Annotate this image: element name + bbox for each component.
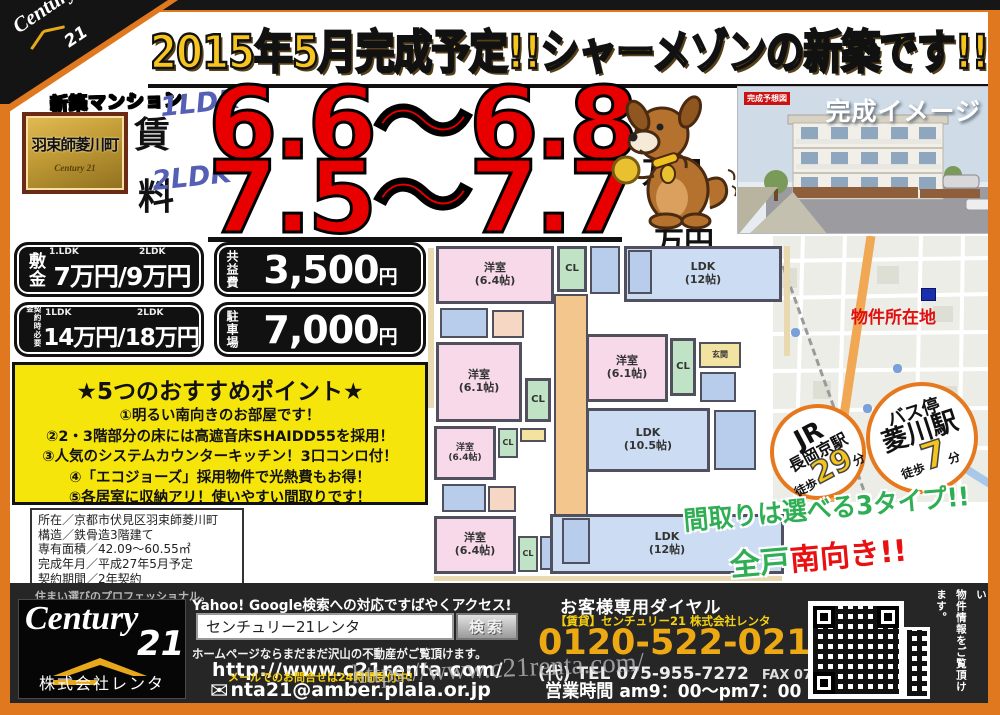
rent-price-2ldk: 7.5～7.7: [208, 148, 634, 248]
deposit-label: 敷金: [26, 252, 43, 288]
kitchen-fixture: [628, 250, 652, 294]
room-yoshitsu-5: 洋室(6.4帖): [434, 516, 516, 574]
common-fee-amount: 3,500: [263, 248, 378, 292]
corridor: [554, 294, 588, 518]
selling-point-5: ⑤各居室に収納アリ！使いやすい間取りです！: [15, 488, 425, 509]
plaque-brand-logo: Century 21: [54, 163, 95, 173]
century21-logo-box: Century 21 株式会社レンタ: [18, 599, 186, 699]
room-ldk-2: LDK(10.5帖): [586, 408, 710, 472]
bottom-frame-border: [0, 703, 1000, 715]
footer-bar: 住まい選びのプロフェッショナル。 Century 21 株式会社レンタ Yaho…: [10, 583, 988, 703]
deposit-type1: 1.LDK: [49, 247, 79, 257]
selling-points-title: ★5つのおすすめポイント★: [15, 372, 425, 406]
parking-amount: 7,000: [263, 308, 378, 352]
property-name: 羽束師菱川町: [31, 133, 118, 155]
parking-unit: 円: [379, 326, 398, 348]
business-hours: 営業時間 am9：00～pm7：00: [545, 677, 801, 703]
century21-wordmark: Century: [25, 600, 138, 638]
toilet-fixture: [590, 246, 620, 294]
right-frame-border: [988, 10, 1000, 715]
property-location-marker: [921, 288, 936, 301]
fee-box-deposit: 敷金 1.LDK 2LDK 7万円/9万円: [14, 242, 204, 297]
company-name: 株式会社レンタ: [19, 670, 185, 694]
bath-fixture: [442, 484, 486, 512]
room-yoshitsu-1: 洋室(6.4帖): [436, 246, 554, 304]
completion-render-image: 完成予想図 完成イメージ: [737, 86, 990, 234]
contract-type1: 1LDK: [45, 308, 71, 318]
selling-point-3: ③人気のシステムカウンターキッチン！3口コンロ付！: [15, 447, 425, 468]
selling-point-1: ①明るい南向きのお部屋です！: [15, 406, 425, 427]
selling-points-box: ★5つのおすすめポイント★ ①明るい南向きのお部屋です！ ②2・3階部分の床には…: [12, 362, 428, 505]
common-fee-label: 共益費: [226, 250, 238, 289]
detail-structure: 構造／鉄骨造3階建て: [38, 528, 236, 543]
search-button[interactable]: 検索: [456, 613, 518, 640]
render-caption: 完成イメージ: [825, 92, 981, 128]
balcony-strip: [428, 248, 434, 408]
selling-point-2: ②2・3階部分の床には高遮音床SHAIDD55を採用！: [15, 427, 425, 448]
common-fee-unit: 円: [379, 266, 398, 288]
room-yoshitsu-3: 洋室(6.1帖): [586, 334, 668, 402]
closet-2: CL: [525, 378, 551, 422]
room-yoshitsu-4: 洋室(6.4帖): [434, 426, 496, 480]
century21-number: 21: [61, 15, 102, 52]
closet-3: CL: [670, 338, 696, 396]
fee-box-contract: 契約時必要金 1LDK 2LDK 14万円/18万円: [14, 302, 204, 357]
property-name-plaque: 羽束師菱川町 Century 21: [22, 112, 128, 194]
entrance-fixture: [520, 428, 546, 442]
render-tag: 完成予想図: [744, 92, 790, 105]
property-location-label: 物件所在地: [851, 303, 936, 328]
entrance: 玄関: [699, 342, 741, 368]
fee-box-common: 共益費 3,500円: [214, 242, 426, 297]
search-section-title: Yahoo! Google検索への対応ですばやくアクセス!: [192, 595, 512, 615]
room-yoshitsu-2: 洋室(6.1帖): [436, 342, 522, 422]
contract-value: 14万円/18万円: [41, 318, 201, 352]
left-frame-border: [0, 104, 10, 705]
kitchen-fixture: [562, 518, 590, 564]
closet-5: CL: [518, 536, 538, 572]
balcony-strip: [784, 246, 790, 356]
detail-location: 所在／京都市伏見区羽束師菱川町: [38, 513, 236, 528]
contract-type2: 2LDK: [137, 308, 163, 318]
dog-mascot-illustration: [600, 90, 736, 230]
fee-box-parking: 駐車場 7,000円: [214, 302, 426, 357]
bath-fixture: [440, 308, 488, 338]
qr-code: [808, 601, 904, 699]
deposit-value: 7万円/9万円: [43, 257, 201, 293]
contract-label: 契約時必要金: [26, 305, 41, 354]
parking-label: 駐車場: [226, 310, 238, 349]
washroom-fixture: [492, 310, 524, 338]
detail-area: 専有面積／42.09～60.55㎡: [38, 542, 236, 557]
closet-4: CL: [498, 428, 518, 458]
balcony-strip: [434, 576, 782, 581]
flyer: 2015年5月完成予定!!シャーメゾンの新築です!! Century 21 新築…: [0, 0, 1000, 715]
search-input[interactable]: センチュリー21レンタ: [196, 613, 454, 640]
envelope-icon: ✉: [210, 679, 228, 704]
detail-completion: 完成年月／平成27年5月予定: [38, 557, 236, 572]
selling-point-4: ④「エコジョーズ」採用物件で光熱費もお得！: [15, 468, 425, 489]
toilet-fixture: [700, 372, 736, 402]
qr-code-partial: [904, 627, 930, 699]
deposit-type2: 2LDK: [139, 247, 165, 257]
bath-fixture: [714, 410, 756, 470]
closet-1: CL: [557, 246, 587, 292]
property-details-box: 所在／京都市伏見区羽束師菱川町 構造／鉄骨造3階建て 専有面積／42.09～60…: [30, 508, 244, 585]
washroom-fixture: [488, 486, 516, 512]
